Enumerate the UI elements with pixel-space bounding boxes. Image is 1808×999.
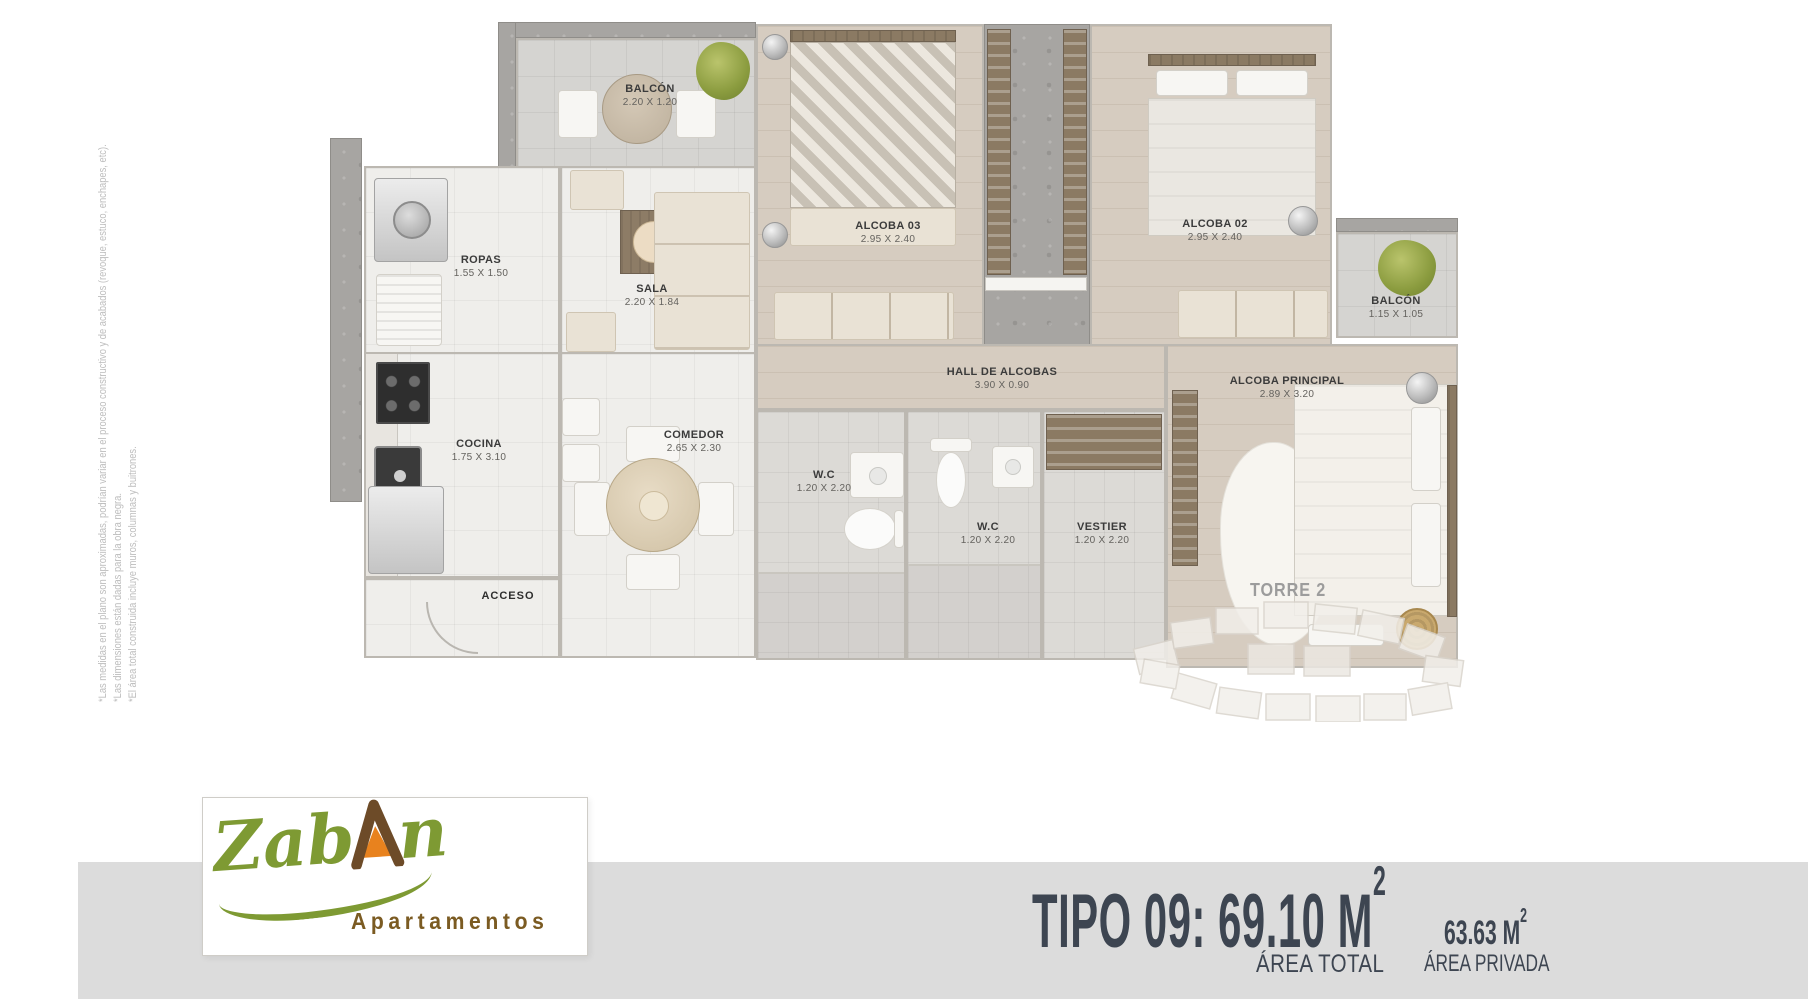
- disclaimer-notes: *Las medidas en el plano son aproximadas…: [96, 144, 141, 702]
- room-dims: 2.20 X 1.20: [623, 96, 677, 110]
- pillow: [1236, 70, 1308, 96]
- room-dims: 1.75 X 3.10: [452, 451, 506, 465]
- room-name: VESTIER: [1077, 521, 1127, 533]
- wardrobe: [1172, 390, 1198, 566]
- room-dims: 1.20 X 2.20: [797, 482, 851, 496]
- room-dims: 2.89 X 3.20: [1230, 388, 1345, 402]
- room-comedor: COMEDOR 2.65 X 2.30: [560, 352, 756, 658]
- dining-chair: [698, 482, 734, 536]
- torre-label: TORRE 2: [1250, 580, 1326, 601]
- toilet: [936, 452, 966, 508]
- room-dims: 1.20 X 2.20: [961, 534, 1015, 548]
- drying-rack: [376, 274, 442, 346]
- room-label: HALL DE ALCOBAS 3.90 X 0.90: [947, 365, 1058, 393]
- closet: [1046, 414, 1162, 470]
- room-cocina: COCINA 1.75 X 3.10: [364, 352, 560, 578]
- disclaimer-line-3: *El área total construida incluye muros,…: [126, 144, 141, 702]
- room-dims: 2.95 X 2.40: [855, 233, 921, 247]
- toilet-tank: [894, 510, 904, 548]
- room-foyer: ACCESO: [364, 578, 560, 658]
- stove: [376, 362, 430, 424]
- bar-stool: [562, 444, 600, 482]
- nightstand-sphere: [762, 222, 788, 248]
- dresser: [1178, 290, 1328, 338]
- concrete-column: [330, 138, 362, 502]
- room-label: BALCÓN 2.20 X 1.20: [623, 82, 677, 110]
- floor-plan-page: *Las medidas en el plano son aproximadas…: [0, 0, 1808, 999]
- brand-logo-plaque: Zab n Apartamentos: [202, 797, 588, 956]
- bar-stool: [562, 398, 600, 436]
- wordmark-zab: Zab: [210, 798, 356, 888]
- room-name: W.C: [813, 469, 835, 481]
- room-label: COCINA 1.75 X 3.10: [452, 437, 506, 465]
- bed-headboard: [1447, 385, 1457, 617]
- room-name: BALCÓN: [1371, 295, 1420, 307]
- bed-headboard: [790, 30, 956, 42]
- room-label: BALCÓN 1.15 X 1.05: [1369, 294, 1423, 322]
- area-privada-value: 63.63 M2: [1444, 914, 1527, 953]
- concrete-wall: [1336, 218, 1458, 232]
- room-label: ALCOBA 02 2.95 X 2.40: [1182, 217, 1248, 245]
- wardrobe: [987, 29, 1011, 275]
- room-label: VESTIER 1.20 X 2.20: [1075, 520, 1129, 548]
- disclaimer-line-2: *Las dimensiones están dadas para la obr…: [111, 144, 126, 702]
- washbasin: [992, 446, 1034, 488]
- dresser: [774, 292, 954, 340]
- concrete-wall: [498, 22, 516, 168]
- tipo-sup: 2: [1373, 857, 1386, 904]
- room-hall-de-alcobas: HALL DE ALCOBAS 3.90 X 0.90: [756, 344, 1166, 410]
- room-dims: 2.65 X 2.30: [664, 442, 724, 456]
- room-name: ALCOBA PRINCIPAL: [1230, 375, 1345, 387]
- entrance-door-arc: [426, 602, 478, 654]
- wardrobe: [1063, 29, 1087, 275]
- fridge: [368, 486, 444, 574]
- pillow: [1411, 407, 1441, 491]
- hall-vertical-corridor: [984, 24, 1090, 346]
- room-label: W.C 1.20 X 2.20: [797, 468, 851, 496]
- privada-value: 63.63 M: [1444, 914, 1520, 952]
- room-dims: 2.95 X 2.40: [1182, 231, 1248, 245]
- room-name: SALA: [636, 283, 668, 295]
- room-balcon-right: BALCÓN 1.15 X 1.05: [1336, 232, 1458, 338]
- room-alcoba-02: ALCOBA 02 2.95 X 2.40: [1090, 24, 1332, 346]
- washbasin: [869, 467, 887, 485]
- brand-wordmark: Zab n: [210, 792, 450, 888]
- dining-chair: [574, 482, 610, 536]
- room-label: COMEDOR 2.65 X 2.30: [664, 428, 724, 456]
- apartment-floor-plan: BALCÓN 2.20 X 1.20 ROPAS 1.55 X 1.50: [330, 22, 1465, 670]
- room-wc-1: W.C 1.20 X 2.20: [756, 410, 906, 660]
- room-dims: 1.20 X 2.20: [1075, 534, 1129, 548]
- room-name: ROPAS: [461, 254, 501, 266]
- room-wc-2: W.C 1.20 X 2.20: [906, 410, 1042, 660]
- room-name: ALCOBA 02: [1182, 218, 1248, 230]
- room-dims: 1.55 X 1.50: [454, 267, 508, 281]
- washing-machine: [374, 178, 448, 262]
- pillow: [1156, 70, 1228, 96]
- room-alcoba-03: ALCOBA 03 2.95 X 2.40: [756, 24, 984, 346]
- faucet: [394, 470, 406, 482]
- basin-bowl: [1005, 459, 1021, 475]
- plant-icon: [696, 42, 750, 100]
- room-label: W.C 1.20 X 2.20: [961, 520, 1015, 548]
- room-dims: 2.20 X 1.84: [625, 296, 679, 310]
- room-dims: 1.15 X 1.05: [1369, 308, 1423, 322]
- bed: [790, 42, 956, 208]
- room-label: SALA 2.20 X 1.84: [625, 282, 679, 310]
- nightstand-sphere: [1288, 206, 1318, 236]
- room-name: ALCOBA 03: [855, 220, 921, 232]
- room-sala: SALA 2.20 X 1.84: [560, 166, 756, 354]
- toilet-tank: [930, 438, 972, 452]
- privada-sup: 2: [1520, 905, 1527, 927]
- room-balcon-top: BALCÓN 2.20 X 1.20: [516, 38, 756, 168]
- room-label: ALCOBA 03 2.95 X 2.40: [855, 219, 921, 247]
- dining-table: [606, 458, 700, 552]
- washer-door: [393, 201, 431, 239]
- bed-headboard: [1148, 54, 1316, 66]
- area-total-label: ÁREA TOTAL: [1256, 950, 1384, 979]
- room-name: BALCÓN: [625, 83, 674, 95]
- room-label: ALCOBA PRINCIPAL 2.89 X 3.20: [1230, 374, 1345, 402]
- armchair: [570, 170, 624, 210]
- tipo-title: TIPO 09: 69.10 M2: [1032, 884, 1386, 960]
- pillow: [1411, 503, 1441, 587]
- brand-subtitle: Apartamentos: [351, 908, 548, 935]
- balcony-chair: [558, 90, 598, 138]
- acceso-label: ACCESO: [481, 590, 534, 602]
- table-centerpiece: [639, 491, 669, 521]
- room-name: COCINA: [456, 438, 502, 450]
- nightstand-sphere: [762, 34, 788, 60]
- sliding-door: [985, 277, 1087, 291]
- area-privada-label: ÁREA PRIVADA: [1424, 950, 1549, 978]
- shower-area: [758, 572, 904, 658]
- room-label: ROPAS 1.55 X 1.50: [454, 253, 508, 281]
- sphere-chair: [1406, 372, 1438, 404]
- armchair: [566, 312, 616, 352]
- concrete-wall: [498, 22, 756, 38]
- disclaimer-line-1: *Las medidas en el plano son aproximadas…: [96, 144, 111, 702]
- vanity: [850, 452, 904, 498]
- shower-area: [908, 564, 1040, 658]
- room-ropas: ROPAS 1.55 X 1.50: [364, 166, 560, 354]
- room-name: HALL DE ALCOBAS: [947, 366, 1058, 378]
- balcony-chair: [676, 90, 716, 138]
- room-name: COMEDOR: [664, 429, 724, 441]
- plant-icon: [1378, 240, 1436, 296]
- room-name: W.C: [977, 521, 999, 533]
- dining-chair: [626, 554, 680, 590]
- room-dims: 3.90 X 0.90: [947, 379, 1058, 393]
- sofa: [654, 192, 750, 350]
- toilet: [844, 508, 896, 550]
- torre-thumbnail: [1128, 600, 1468, 722]
- wordmark-n: n: [395, 792, 450, 875]
